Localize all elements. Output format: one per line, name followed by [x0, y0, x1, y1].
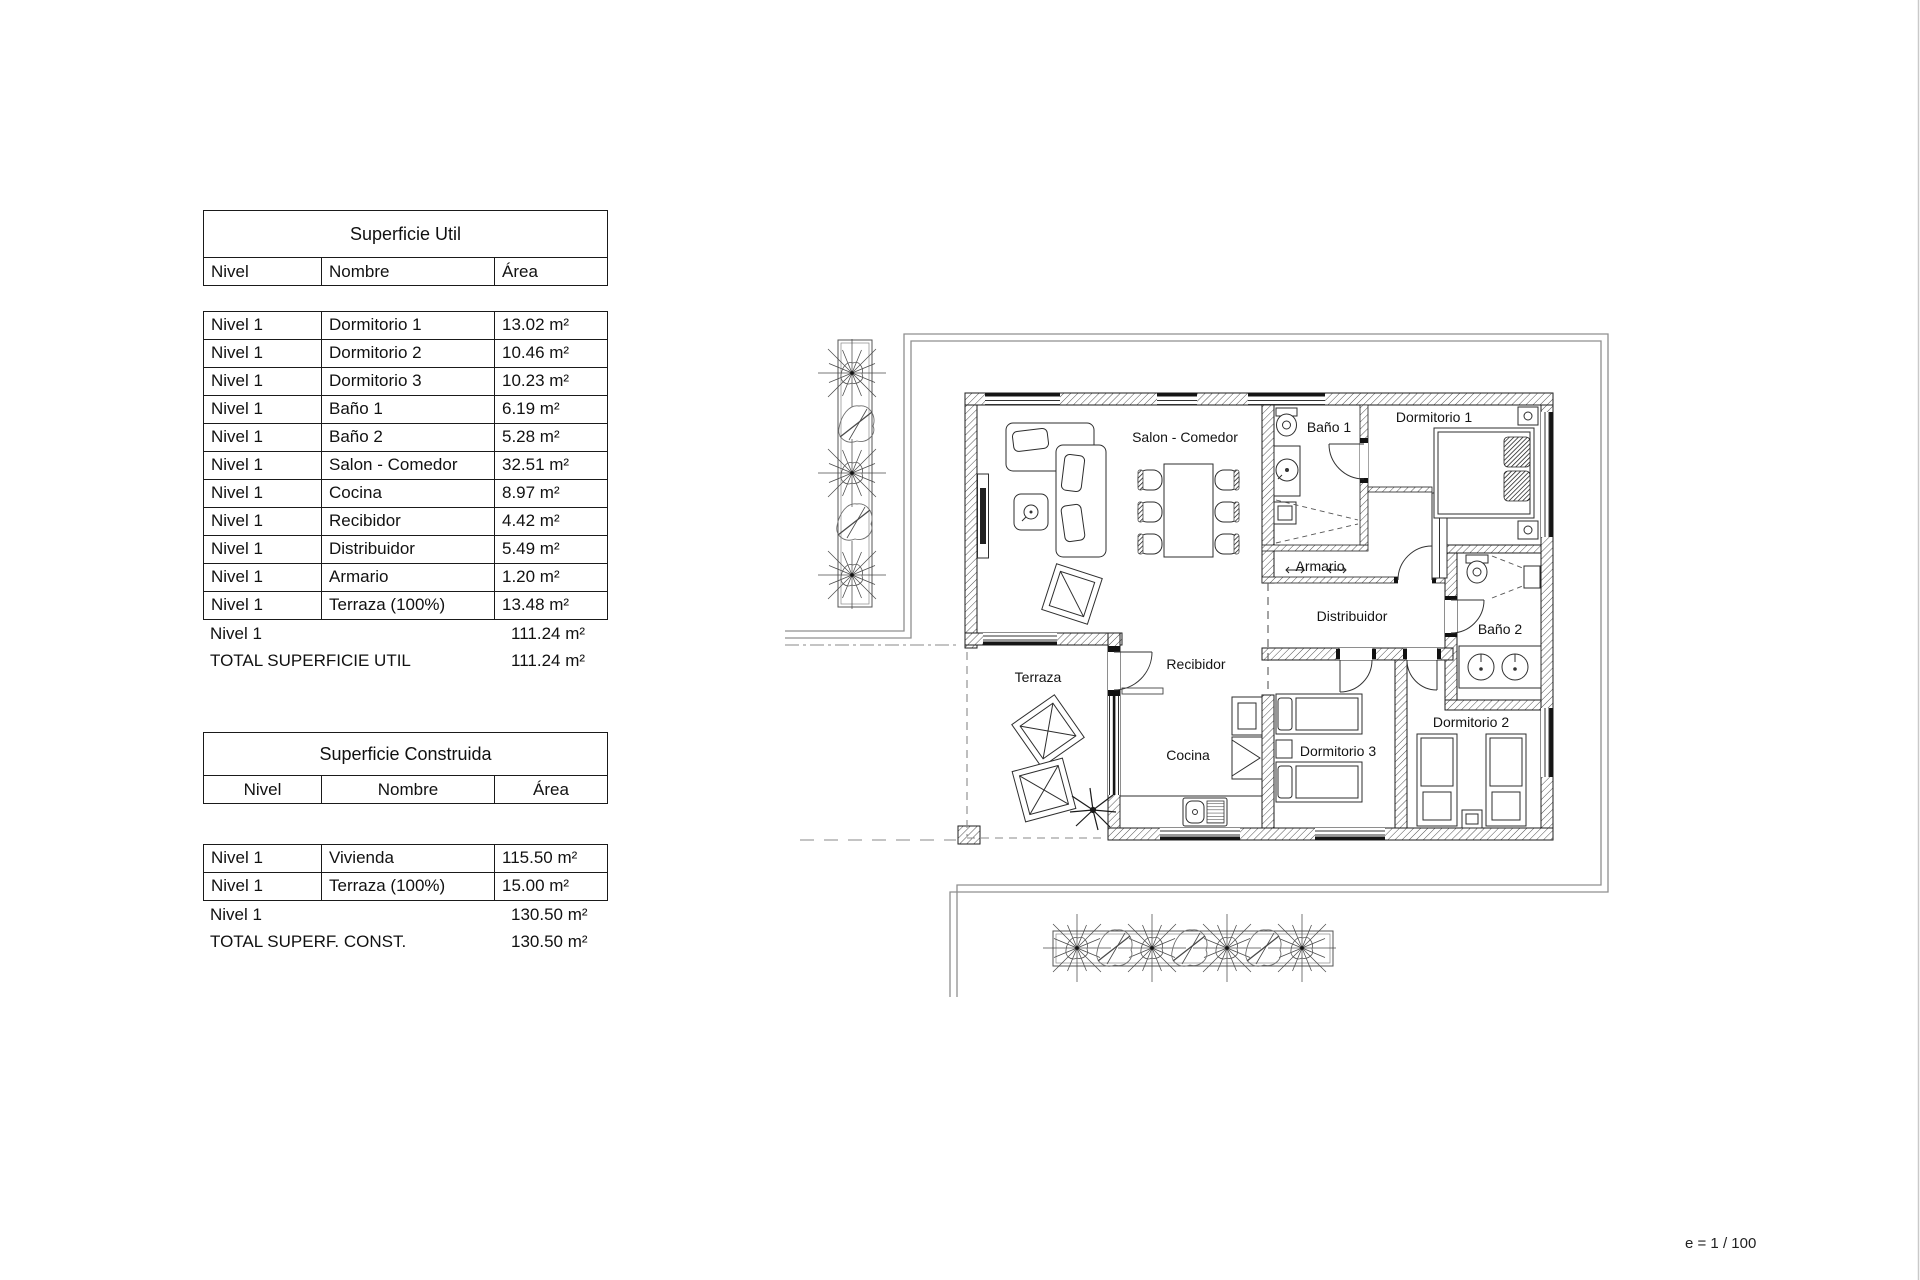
dorm2-door: [1403, 648, 1441, 690]
room-label-dorm3: Dormitorio 3: [1300, 743, 1376, 759]
room-label-terraza: Terraza: [1015, 669, 1062, 685]
bottom-planter: [1043, 914, 1336, 982]
entry-door: [1108, 646, 1152, 696]
window: [1160, 828, 1240, 840]
window: [1315, 828, 1385, 840]
tv-unit: [978, 474, 989, 558]
side-table: [1014, 494, 1048, 530]
room-label-recibidor: Recibidor: [1166, 656, 1225, 672]
room-label-dorm2: Dormitorio 2: [1433, 714, 1509, 730]
dining-table: [1138, 464, 1239, 557]
kitchen-cabinets: [1232, 697, 1262, 779]
terraza-furniture: [1012, 695, 1116, 830]
left-planter: [818, 339, 886, 609]
window: [983, 633, 1057, 645]
room-label-armario: Armario: [1295, 558, 1344, 574]
window: [1248, 393, 1325, 405]
room-label-distribuidor: Distribuidor: [1317, 608, 1388, 624]
window: [1541, 412, 1553, 537]
room-label-dorm1: Dormitorio 1: [1396, 409, 1472, 425]
coffee-table: [1042, 564, 1102, 624]
room-label-bano2: Baño 2: [1478, 621, 1523, 637]
dorm2-furniture: [1417, 734, 1526, 828]
bano1-door: [1329, 438, 1368, 483]
room-label-salon: Salon - Comedor: [1132, 429, 1238, 445]
room-label-cocina: Cocina: [1166, 747, 1210, 763]
window: [985, 393, 1060, 405]
window: [1157, 393, 1197, 405]
kitchen-counter: [1120, 796, 1262, 828]
scale-note: e = 1 / 100: [1685, 1235, 1756, 1252]
window: [1541, 708, 1553, 777]
floor-plan-svg: Salon - Comedor Baño 1 Dormitorio 1 Arma…: [0, 0, 1920, 1280]
dorm1-door: [1394, 546, 1436, 584]
room-label-bano1: Baño 1: [1307, 419, 1352, 435]
sofa: [1006, 423, 1106, 557]
sliding-glass-door: [1108, 690, 1120, 795]
floorplan-sheet: { "tables": { "util": { "title": "Superf…: [0, 0, 1920, 1280]
dorm3-door: [1336, 648, 1376, 692]
